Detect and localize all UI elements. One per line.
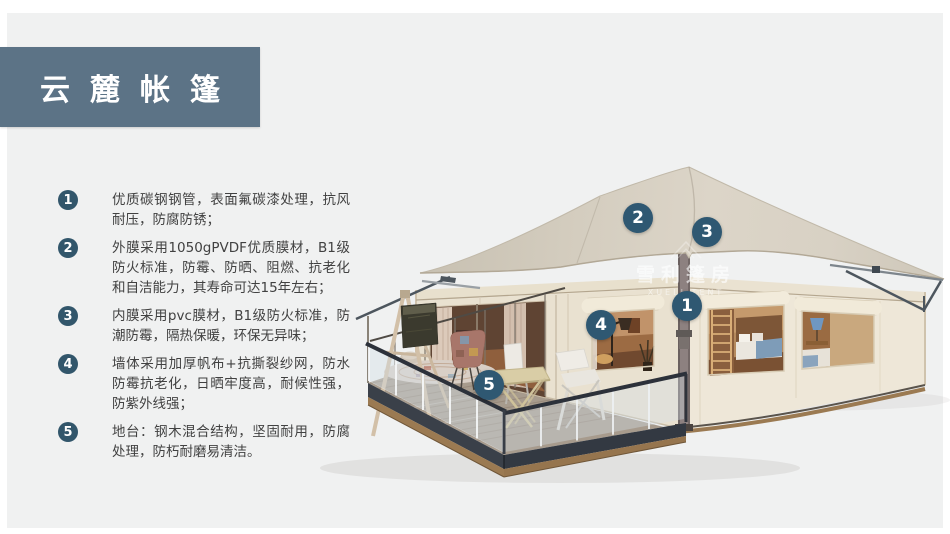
feature-text: 优质碳钢钢管，表面氟碳漆处理，抗风耐压，防腐防锈；	[112, 190, 350, 230]
feature-number-badge: 2	[58, 238, 78, 258]
window-right-a	[700, 291, 790, 376]
feature-item-4: 4 墙体采用加厚帆布+抗撕裂纱网，防水防霉抗老化，日晒牢度高，耐候性强，防紫外线…	[58, 354, 358, 414]
feature-text: 外膜采用1050gPVDF优质膜材，B1级防火标准，防霉、防晒、阻燃、抗老化和自…	[112, 238, 350, 298]
feature-number-badge: 5	[58, 422, 78, 442]
feature-text: 墙体采用加厚帆布+抗撕裂纱网，防水防霉抗老化，日晒牢度高，耐候性强，防紫外线强；	[112, 354, 350, 414]
feature-number-badge: 1	[58, 190, 78, 210]
feature-text: 地台：钢木混合结构，坚固耐用，防腐处理，防朽耐磨易清洁。	[112, 422, 350, 462]
tent-marker-2: 2	[623, 203, 653, 233]
slide: 雪利篷房 XUELI TENT 1 2 3 4 5 云麓帐篷 1 优质碳钢钢管，…	[0, 0, 950, 534]
window-right-b	[794, 297, 882, 369]
tent-marker-1: 1	[672, 291, 702, 321]
tent-marker-4: 4	[586, 310, 616, 340]
feature-item-1: 1 优质碳钢钢管，表面氟碳漆处理，抗风耐压，防腐防锈；	[58, 190, 358, 230]
page-title: 云麓帐篷	[20, 65, 240, 109]
tent-marker-3: 3	[692, 217, 722, 247]
feature-text: 内膜采用pvc膜材，B1级防火标准，防潮防霉，隔热保暖，环保无异味；	[112, 306, 350, 346]
feature-number-badge: 4	[58, 354, 78, 374]
feature-item-5: 5 地台：钢木混合结构，坚固耐用，防腐处理，防朽耐磨易清洁。	[58, 422, 358, 462]
tent-wall-right	[668, 277, 925, 433]
title-banner: 云麓帐篷	[0, 47, 260, 127]
feature-number-badge: 3	[58, 306, 78, 326]
feature-item-2: 2 外膜采用1050gPVDF优质膜材，B1级防火标准，防霉、防晒、阻燃、抗老化…	[58, 238, 358, 298]
tent-marker-5: 5	[474, 370, 504, 400]
feature-list: 1 优质碳钢钢管，表面氟碳漆处理，抗风耐压，防腐防锈； 2 外膜采用1050gP…	[58, 190, 358, 462]
feature-item-3: 3 内膜采用pvc膜材，B1级防火标准，防潮防霉，隔热保暖，环保无异味；	[58, 306, 358, 346]
